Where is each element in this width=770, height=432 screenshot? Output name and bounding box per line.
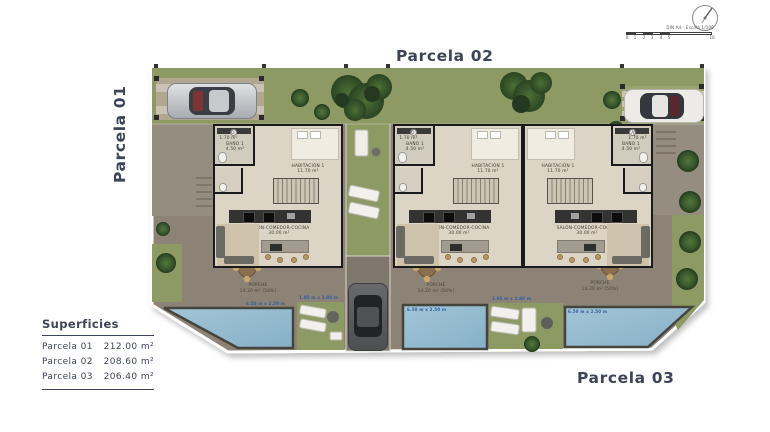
legend-row-parcela-03: Parcela 03 206.40 m² (42, 369, 154, 384)
bathroom-label: BAÑO 14.50 m² (613, 142, 649, 153)
pillow (545, 131, 556, 139)
scale-caption: DIN A4 - Escala 1/100 (626, 25, 714, 30)
tick-2: 2 (643, 35, 646, 40)
sofa-2 (224, 256, 254, 264)
tick-5: 5 (668, 35, 671, 40)
porche-label-2: PORCHE14.20 m² (50%) (401, 283, 471, 294)
dining-chair (445, 254, 451, 260)
house-unit-parcela-02: BAÑO 14.50 m² ASEO1.70 m² HABITACIÓN 111… (393, 124, 523, 268)
car-roof (357, 307, 379, 327)
title-parcela-02: Parcela 02 (396, 47, 494, 65)
pillow (297, 131, 308, 139)
pool-parcela-01 (164, 308, 293, 348)
sofa (216, 226, 225, 258)
bedroom-label: HABITACIÓN 111.70 m² (525, 164, 591, 175)
bedroom-label: HABITACIÓN 111.70 m² (455, 164, 521, 175)
bedroom-label: HABITACIÓN 111.70 m² (275, 164, 341, 175)
legend-label: Parcela 03 (42, 372, 93, 382)
bed (527, 128, 575, 160)
dining-chair (265, 254, 271, 260)
cooktop (423, 212, 435, 223)
legend-row-parcela-01: Parcela 01 212.00 m² (42, 339, 154, 354)
porche-label-3: PORCHE14.20 m² (50%) (565, 281, 635, 292)
dining-chair (471, 257, 477, 263)
car-roof (652, 95, 668, 117)
aseo-toilet-icon (639, 183, 647, 192)
porche-label-1: PORCHE14.20 m² (50%) (223, 283, 293, 294)
entrance-court-left (152, 124, 213, 216)
kitchen-island (441, 240, 489, 253)
scale-bar: DIN A4 - Escala 1/100 0 1 2 3 4 5 10 (626, 25, 714, 41)
island-sink (584, 244, 596, 251)
legend-value: 206.40 m² (104, 372, 154, 382)
kitchen-sink (571, 213, 579, 219)
tick-4: 4 (660, 35, 663, 40)
cooktop (611, 212, 623, 223)
oven (591, 212, 603, 223)
tick-10: 10 (709, 35, 714, 40)
title-parcela-01: Parcela 01 (111, 86, 129, 184)
legend-row-parcela-02: Parcela 02 208.60 m² (42, 354, 154, 369)
sofa-2 (404, 256, 434, 264)
aseo-label: ASEO1.70 m² (395, 131, 422, 142)
parked-car-top-right (624, 89, 704, 123)
stairs (273, 178, 319, 204)
kitchen-counter (229, 210, 311, 223)
surfaces-legend: Superficies Parcela 01 212.00 m² Parcela… (42, 317, 154, 393)
car-roof (209, 90, 229, 112)
sofa-2 (612, 256, 642, 264)
kitchen-island (261, 240, 309, 253)
island-sink (450, 244, 462, 251)
toilet-icon (639, 152, 648, 163)
stairs (453, 178, 499, 204)
aseo-room (623, 168, 651, 194)
toilet-icon (398, 152, 407, 163)
dining-chair (303, 254, 309, 260)
cooktop (243, 212, 255, 223)
kitchen-island (557, 240, 605, 253)
dining-chair (483, 254, 489, 260)
island-sink (270, 244, 282, 251)
stairs (547, 178, 593, 204)
aseo-label: ASEO1.70 m² (624, 131, 651, 142)
pillow (477, 131, 488, 139)
bed (471, 128, 519, 160)
parked-car-driveway (348, 283, 388, 351)
tick-3: 3 (651, 35, 654, 40)
legend-value: 212.00 m² (104, 342, 154, 352)
floor-plan-canvas: BAÑO 14.50 m² ASEO1.70 m² HABITACIÓN 111… (0, 0, 770, 432)
toilet-icon (218, 152, 227, 163)
dining-chair (557, 254, 563, 260)
tick-1: 1 (634, 35, 637, 40)
oven (263, 212, 275, 223)
tick-0: 0 (626, 35, 629, 40)
dining-chair (595, 254, 601, 260)
dining-chair (291, 257, 297, 263)
kitchen-counter (409, 210, 491, 223)
pillow (558, 131, 569, 139)
grass-patch-left (152, 244, 182, 302)
bathroom-label: BAÑO 14.50 m² (397, 142, 433, 153)
sofa (641, 226, 650, 258)
aseo-room (395, 168, 423, 194)
house-unit-parcela-01: BAÑO 14.50 m² ASEO1.70 m² HABITACIÓN 111… (213, 124, 343, 268)
legend-label: Parcela 01 (42, 342, 93, 352)
oven (443, 212, 455, 223)
car-interior (193, 91, 203, 111)
house-unit-parcela-03: BAÑO 14.50 m² ASEO1.70 m² HABITACIÓN 111… (523, 124, 653, 268)
dining-chair (569, 257, 575, 263)
title-parcela-03: Parcela 03 (577, 369, 675, 387)
legend-value: 208.60 m² (104, 357, 154, 367)
bathroom-label: BAÑO 14.50 m² (217, 142, 253, 153)
sofa (396, 226, 405, 258)
legend-title: Superficies (42, 317, 154, 331)
dining-chair (583, 257, 589, 263)
dining-chair (457, 257, 463, 263)
aseo-label: ASEO1.70 m² (215, 131, 242, 142)
car-interior (670, 96, 679, 116)
scale-ticks: 0 1 2 3 4 5 10 (626, 35, 714, 41)
pool-dimension-2: 6.50 m x 2.50 m (407, 307, 446, 312)
pillow (310, 131, 321, 139)
pool-dimension-1: 6.50 m x 2.50 m (246, 301, 285, 306)
aseo-room (215, 168, 243, 194)
dining-chair (277, 257, 283, 263)
aseo-toilet-icon (399, 183, 407, 192)
kitchen-sink (287, 213, 295, 219)
aseo-toilet-icon (219, 183, 227, 192)
pillow (490, 131, 501, 139)
pool-dimension-3: 6.50 m x 2.50 m (568, 309, 607, 314)
kitchen-sink (467, 213, 475, 219)
legend-label: Parcela 02 (42, 357, 93, 367)
patio-dimension-2: 1.95 m x 2.80 m (492, 296, 531, 301)
kitchen-counter (555, 210, 637, 223)
legend-divider (42, 335, 154, 336)
patio-dimension-1: 1.95 m x 2.80 m (299, 295, 338, 300)
parked-car-top-left (167, 83, 257, 119)
bed (291, 128, 339, 160)
legend-divider (42, 389, 154, 390)
